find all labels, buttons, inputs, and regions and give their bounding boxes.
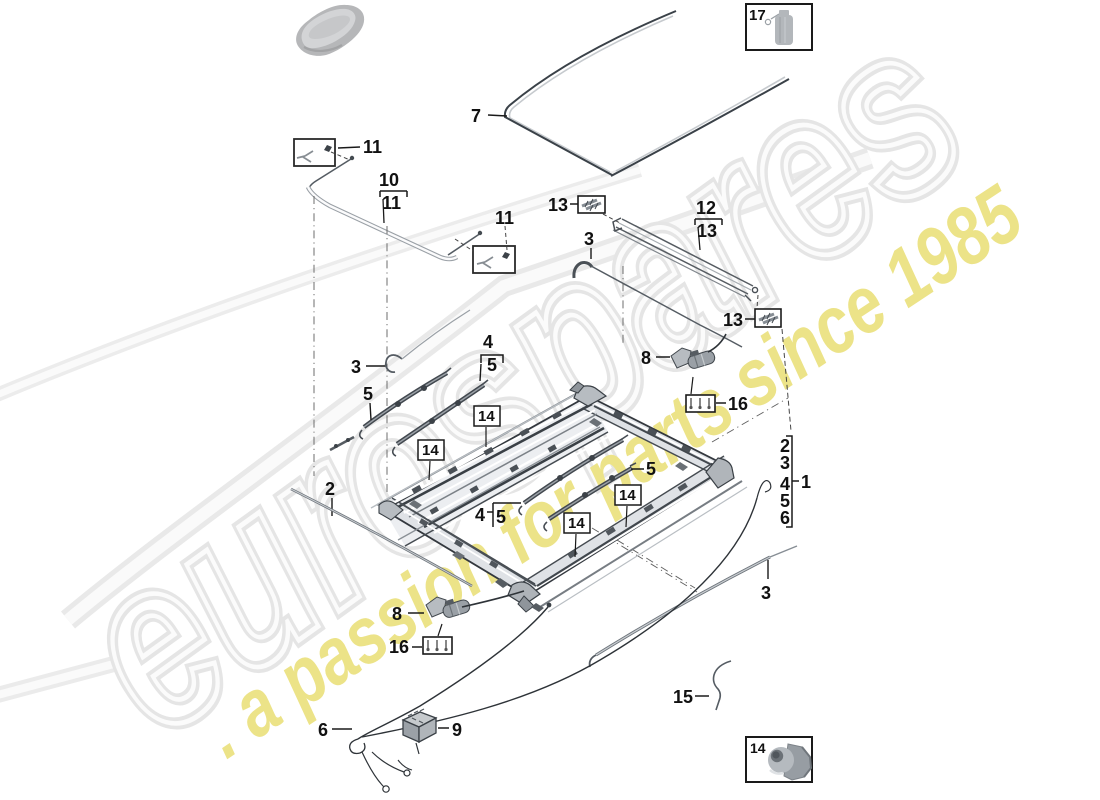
svg-text:10: 10 <box>379 170 399 190</box>
svg-text:6: 6 <box>318 720 328 740</box>
svg-text:3: 3 <box>761 583 771 603</box>
svg-text:6: 6 <box>780 508 790 528</box>
svg-text:16: 16 <box>389 637 409 657</box>
svg-text:8: 8 <box>392 604 402 624</box>
svg-text:15: 15 <box>673 687 693 707</box>
svg-text:5: 5 <box>363 384 373 404</box>
svg-text:11: 11 <box>363 137 382 157</box>
svg-text:13: 13 <box>548 195 568 215</box>
svg-text:14: 14 <box>568 515 585 532</box>
svg-text:17: 17 <box>749 7 766 24</box>
svg-text:14: 14 <box>478 408 495 425</box>
svg-text:5: 5 <box>496 507 506 527</box>
svg-text:13: 13 <box>723 310 743 330</box>
svg-text:3: 3 <box>780 453 790 473</box>
svg-text:4: 4 <box>475 505 485 525</box>
svg-text:1: 1 <box>801 472 811 492</box>
svg-text:14: 14 <box>619 487 636 504</box>
svg-text:2: 2 <box>325 479 335 499</box>
svg-text:13: 13 <box>697 221 717 241</box>
svg-text:3: 3 <box>584 229 594 249</box>
svg-text:11: 11 <box>495 208 514 228</box>
svg-text:9: 9 <box>452 720 462 740</box>
svg-text:5: 5 <box>646 459 656 479</box>
svg-text:8: 8 <box>641 348 651 368</box>
svg-text:3: 3 <box>351 357 361 377</box>
svg-text:14: 14 <box>750 740 766 756</box>
svg-text:12: 12 <box>696 198 716 218</box>
svg-text:16: 16 <box>728 394 748 414</box>
svg-text:5: 5 <box>487 355 497 375</box>
svg-text:7: 7 <box>471 106 481 126</box>
svg-text:14: 14 <box>422 442 439 459</box>
svg-text:4: 4 <box>483 332 493 352</box>
svg-text:11: 11 <box>382 193 401 213</box>
